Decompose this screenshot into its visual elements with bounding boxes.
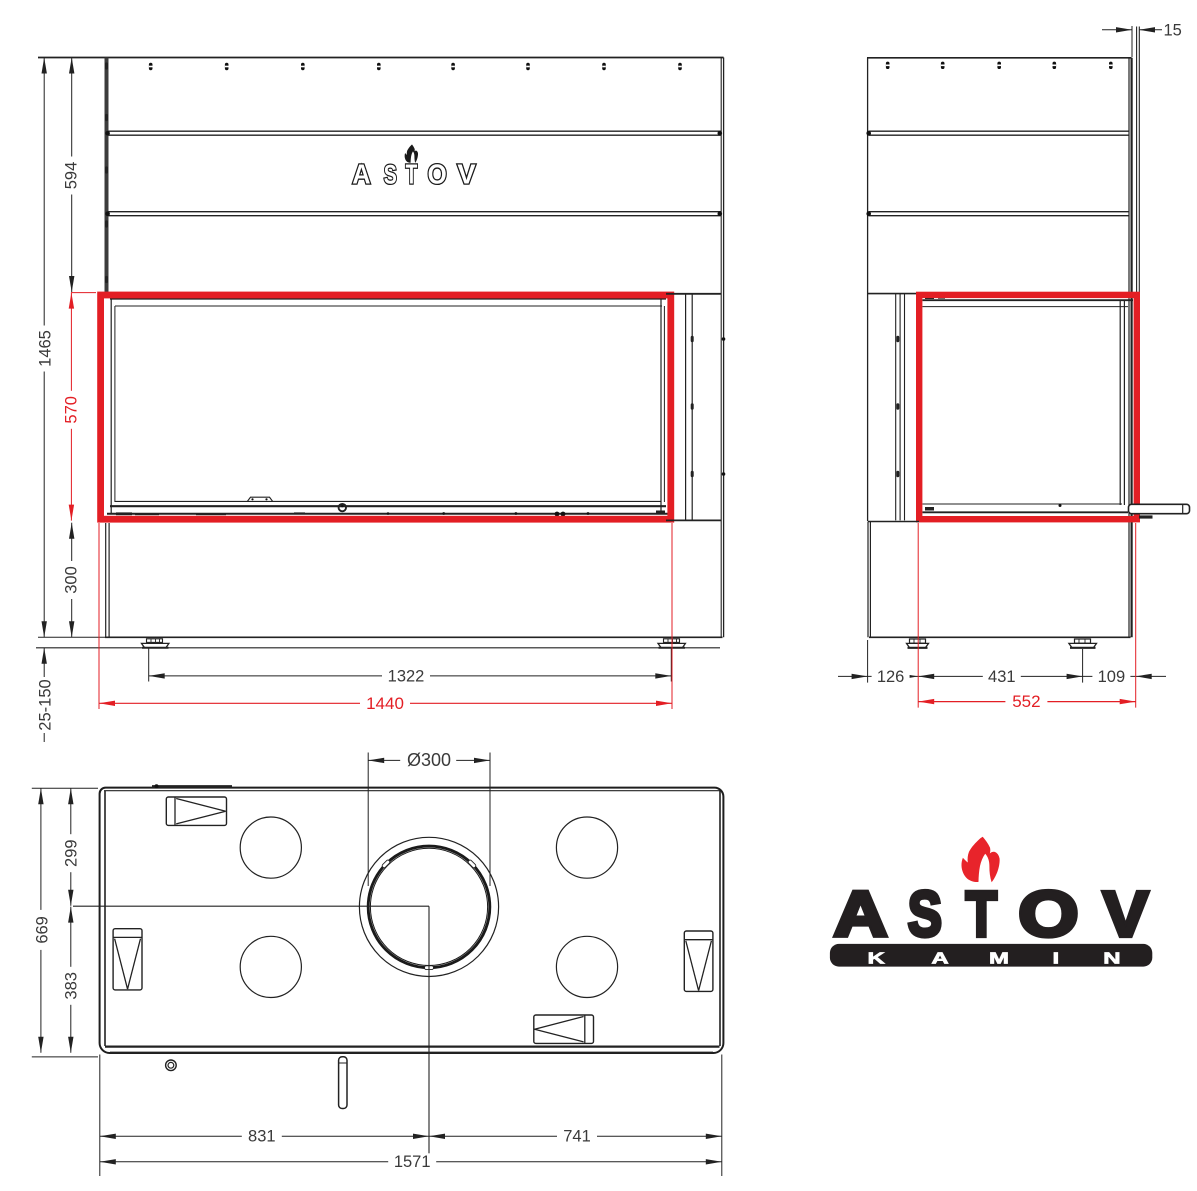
svg-text:126: 126 [877,668,905,686]
svg-text:A: A [931,950,949,967]
svg-text:M: M [989,950,1009,967]
svg-text:431: 431 [988,668,1016,686]
svg-text:T: T [966,879,997,951]
svg-text:1322: 1322 [388,667,425,685]
svg-text:Ø300: Ø300 [407,750,451,770]
svg-text:V: V [1103,879,1148,951]
svg-text:741: 741 [563,1128,591,1146]
svg-text:25-150: 25-150 [36,679,54,730]
svg-text:15: 15 [1164,22,1182,40]
svg-text:594: 594 [62,162,80,190]
svg-text:831: 831 [248,1128,276,1146]
svg-text:S: S [908,879,942,951]
svg-text:V: V [457,159,476,190]
svg-text:S: S [384,159,397,190]
svg-text:1440: 1440 [366,694,404,713]
svg-text:552: 552 [1012,692,1040,711]
svg-text:570: 570 [63,396,81,424]
svg-text:I: I [1052,950,1059,967]
svg-text:A: A [352,159,370,190]
svg-text:O: O [1018,879,1078,950]
svg-text:669: 669 [33,916,51,944]
svg-text:K: K [867,950,885,967]
svg-text:109: 109 [1098,668,1126,686]
svg-text:383: 383 [62,972,80,1000]
svg-text:T: T [406,159,418,189]
svg-text:1571: 1571 [394,1153,431,1171]
svg-text:299: 299 [62,839,80,867]
svg-text:1465: 1465 [36,330,54,367]
svg-text:A: A [834,878,888,950]
svg-text:O: O [428,158,447,190]
svg-text:300: 300 [63,566,81,594]
svg-text:N: N [1103,950,1120,967]
